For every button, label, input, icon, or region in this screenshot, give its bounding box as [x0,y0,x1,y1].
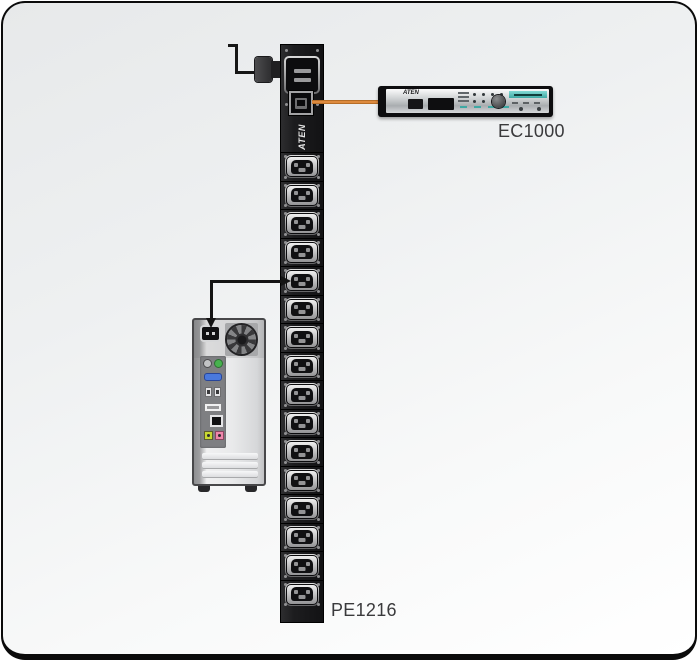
screw-icon [317,261,320,264]
io-panel [200,356,226,448]
c13-socket [291,587,313,601]
ps2-port-icon [203,359,212,368]
ec1000-device: ATEN [378,86,553,117]
power-cable-segment [210,280,282,283]
power-outlet [281,551,323,580]
screw-icon [317,375,320,378]
outlet-bezel [285,241,319,264]
ec1000-port [408,99,423,109]
outlet-face [287,528,317,547]
socket-hole [306,305,310,309]
screw-icon [284,375,287,378]
vent-slot [202,462,258,468]
vga-port-icon [204,373,222,381]
screw-icon [317,298,320,301]
screw-icon [317,440,320,443]
cooling-fan [225,323,258,356]
power-outlet [281,238,323,267]
socket-hole [294,419,298,423]
c13-socket [291,502,313,516]
vent-slot [202,471,258,477]
screw-icon [317,412,320,415]
outlet-bezel [285,440,319,463]
screw-icon [284,326,287,329]
screw-icon [317,347,320,350]
ec1000-display [428,98,454,110]
c13-socket [291,274,313,288]
outlet-face [287,385,317,404]
audio-jack-icon [215,431,224,440]
screw-icon [317,526,320,529]
screw-icon [317,554,320,557]
screw-icon [284,176,287,179]
screw-icon [317,290,320,293]
pdu-brand-text: ATEN [297,124,307,150]
power-cable-segment [210,282,213,318]
outlet-face [287,414,317,433]
screw-icon [284,404,287,407]
socket-hole [306,533,310,537]
screw-icon [284,261,287,264]
ec1000-model-label: EC1000 [498,121,558,142]
socket-hole [294,590,298,594]
panel-text-marks [512,102,540,104]
socket-hole [299,253,306,257]
power-outlet [281,181,323,210]
outlet-face [287,499,317,518]
screw-icon [317,469,320,472]
power-outlet [281,466,323,495]
outlet-face [287,243,317,262]
power-outlet [281,152,323,181]
socket-hole [294,191,298,195]
socket-hole [299,225,306,229]
screw-icon [284,241,287,244]
power-outlet [281,352,323,381]
screw-icon [284,603,287,606]
outlet-bezel [285,298,319,321]
screw-icon [284,347,287,350]
screw-icon [317,269,320,272]
outlet-face [287,357,317,376]
screw-icon [284,469,287,472]
screw-icon [284,318,287,321]
vent-slot [202,453,258,459]
screw-icon [284,155,287,158]
ec1000-legend-text [458,92,469,102]
c13-socket [291,473,313,487]
screw-icon [285,103,288,106]
screw-icon [317,497,320,500]
c20-socket [286,58,318,92]
outlet-face [287,442,317,461]
outlet-bezel [285,326,319,349]
diagram-canvas: ATEN [0,0,700,661]
c13-socket [291,530,313,544]
socket-hole [306,590,310,594]
outlet-bezel [285,469,319,492]
screw-icon [317,546,320,549]
ec1000-brand-logo: ATEN [403,90,419,96]
socket-hole [306,220,310,224]
screw-icon [317,184,320,187]
outlet-bezel [285,155,319,178]
socket-hole [306,277,310,281]
outlet-face [287,556,317,575]
socket-hole [306,191,310,195]
fan-blades-icon [227,325,256,354]
screw-icon [317,383,320,386]
outlet-face [287,471,317,490]
socket-hole [294,305,298,309]
outlet-bezel [285,355,319,378]
socket-hole [299,424,306,428]
model-name-band [509,91,547,98]
screw-icon [284,575,287,578]
fan-hub [237,335,246,344]
outlet-face [287,271,317,290]
socket-hole [294,476,298,480]
c20-power-inlet [284,56,320,94]
screw-icon [284,497,287,500]
screw-icon [284,298,287,301]
screw-icon [284,383,287,386]
socket-hole [299,282,306,286]
power-outlet [281,323,323,352]
c20-blade-slot [294,69,311,73]
screw-icon [284,412,287,415]
outlet-bezel [285,412,319,435]
socket-hole [294,277,298,281]
socket-hole [294,391,298,395]
c13-socket [291,302,313,316]
c13-socket [291,559,313,573]
socket-hole [294,362,298,366]
screw-icon [317,575,320,578]
c20-blade-slot [294,78,311,82]
screw-icon [284,184,287,187]
screw-icon [284,432,287,435]
screw-icon [317,603,320,606]
ps2-port-icon [214,359,223,368]
power-outlet [281,409,323,438]
screw-icon [317,204,320,207]
outlet-bezel [285,526,319,549]
screw-icon [284,269,287,272]
power-outlet [281,437,323,466]
socket-hole [294,220,298,224]
screw-icon [284,290,287,293]
socket-hole [306,476,310,480]
screw-icon [317,326,320,329]
socket-hole [306,419,310,423]
screw-icon [284,554,287,557]
c13-socket [291,160,313,174]
socket-hole [299,453,306,457]
socket-hole [299,567,306,571]
outlet-bezel [285,212,319,235]
socket-hole [306,448,310,452]
socket-hole [299,538,306,542]
socket-hole [306,362,310,366]
outlet-face [287,214,317,233]
screw-icon [284,526,287,529]
screw-icon [317,432,320,435]
screw-icon [316,49,319,52]
power-plug [255,57,272,82]
screw-icon [284,212,287,215]
arrow-down-icon [206,318,216,328]
pdu-model-label: PE1216 [331,600,397,621]
outlet-bezel [285,554,319,577]
usb-port-icon [214,387,221,397]
power-cord-segment [235,71,257,74]
screw-icon [317,583,320,586]
ec1000-faceplate: ATEN [386,89,549,113]
screw-icon [284,518,287,521]
socket-hole [294,562,298,566]
socket-hole [299,510,306,514]
screw-icon [284,546,287,549]
screw-icon [317,489,320,492]
socket-hole [306,505,310,509]
screw-icon [317,318,320,321]
c13-socket [291,388,313,402]
socket-hole [306,163,310,167]
socket-hole [306,248,310,252]
power-outlet [281,523,323,552]
screw-icon [317,233,320,236]
socket-hole [294,505,298,509]
c13-socket [291,416,313,430]
screw-icon [284,440,287,443]
dvi-port-icon [204,403,222,412]
outlet-bezel [285,583,319,606]
screw-icon [284,204,287,207]
outlet-face [287,328,317,347]
power-outlet [281,380,323,409]
c13-socket [291,359,313,373]
screw-icon [317,404,320,407]
screw-icon [317,461,320,464]
pdu-brand-logo: ATEN [281,119,323,155]
computer-power-inlet [202,327,219,340]
arrow-right-icon [281,276,291,286]
socket-hole [299,367,306,371]
socket-hole [306,562,310,566]
power-led-icons [519,107,541,111]
computer-tower [192,318,266,486]
screw-icon [284,461,287,464]
socket-hole [294,163,298,167]
outlet-face [287,300,317,319]
screw-icon [317,155,320,158]
c13-socket [291,217,313,231]
socket-hole [294,248,298,252]
power-cord-segment [235,44,238,74]
ethernet-port-icon [212,417,221,425]
usb-port-icon [205,387,212,397]
screw-icon [284,355,287,358]
screw-icon [317,212,320,215]
screw-icon [317,176,320,179]
screw-icon [284,489,287,492]
outlet-bezel [285,497,319,520]
socket-hole [294,533,298,537]
socket-hole [299,396,306,400]
socket-hole [299,196,306,200]
socket-hole [299,168,306,172]
c13-socket [291,445,313,459]
socket-hole [294,448,298,452]
screw-icon [284,583,287,586]
socket-hole [294,334,298,338]
screw-icon [317,355,320,358]
power-outlet [281,494,323,523]
power-outlet [281,209,323,238]
power-outlet [281,295,323,324]
c13-socket [291,188,313,202]
outlet-bezel [285,383,319,406]
controller-port-opening [295,98,307,109]
audio-jack-icon [204,431,213,440]
screw-icon [317,518,320,521]
outlet-face [287,186,317,205]
outlet-bezel [285,184,319,207]
socket-hole [299,310,306,314]
c13-socket [291,331,313,345]
outlet-face [287,585,317,604]
socket-hole [299,339,306,343]
socket-hole [306,391,310,395]
screw-icon [284,233,287,236]
screw-icon [317,241,320,244]
socket-hole [306,334,310,338]
socket-hole [299,481,306,485]
control-knob [492,95,505,108]
outlet-face [287,157,317,176]
socket-hole [299,595,306,599]
controller-port [289,91,313,115]
c13-socket [291,245,313,259]
outlet-list [281,152,323,608]
controller-cable [312,100,378,104]
power-outlet [281,580,323,609]
screw-icon [285,49,288,52]
